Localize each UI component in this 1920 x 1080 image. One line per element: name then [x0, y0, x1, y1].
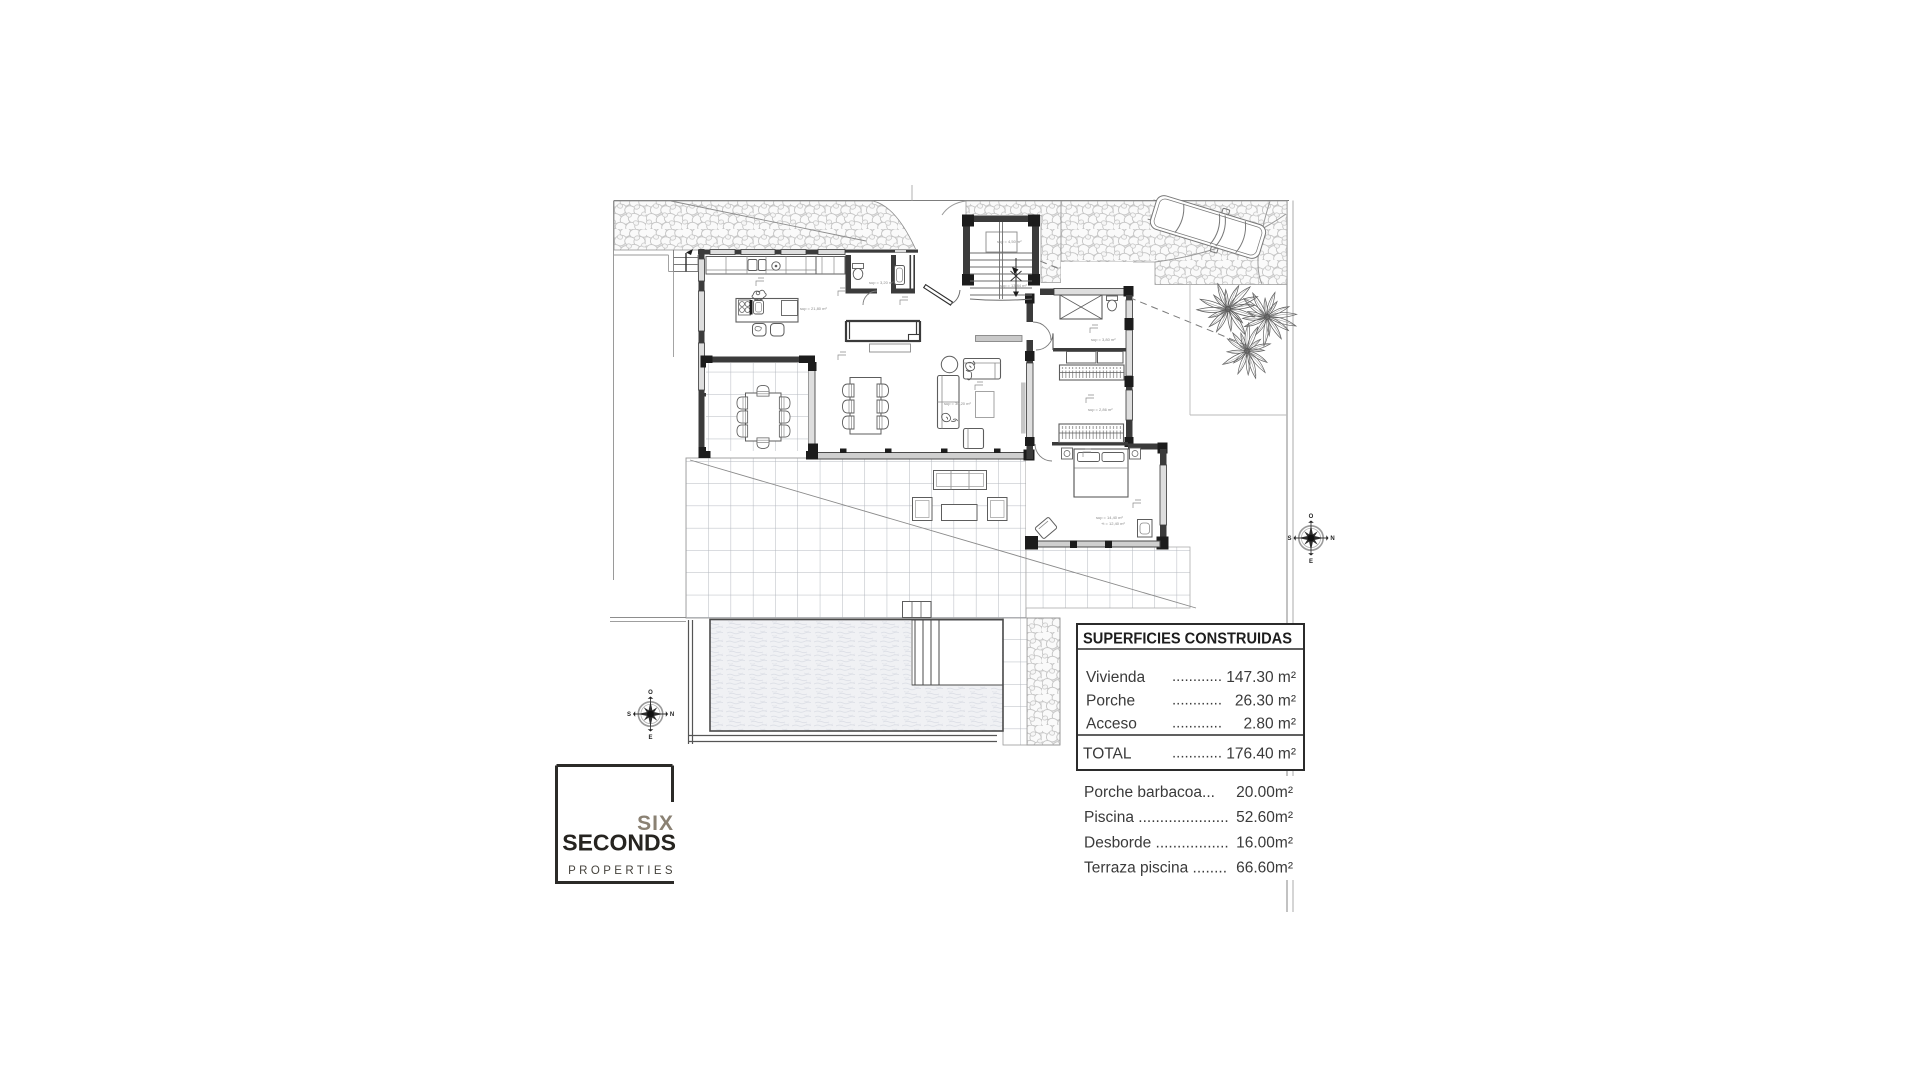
svg-text:Acceso: Acceso: [1086, 716, 1137, 733]
svg-text:Porche barbacoa...: Porche barbacoa...: [1084, 784, 1215, 801]
svg-text:176.40 m²: 176.40 m²: [1226, 746, 1296, 763]
svg-text:sup = 3,20 m²: sup = 3,20 m²: [869, 280, 894, 285]
svg-text:............: ............: [1172, 745, 1222, 762]
svg-text:sup = 13,84 m²: sup = 13,84 m²: [1000, 283, 1027, 288]
svg-text:+t = 12,40 m²: +t = 12,40 m²: [1101, 521, 1125, 526]
svg-text:2.80 m²: 2.80 m²: [1243, 716, 1296, 733]
svg-text:147.30 m²: 147.30 m²: [1226, 669, 1296, 686]
svg-text:26.30 m²: 26.30 m²: [1235, 693, 1296, 710]
svg-text:Desborde .................: Desborde .................: [1084, 835, 1229, 852]
svg-text:52.60m²: 52.60m²: [1236, 809, 1293, 826]
svg-text:20.00m²: 20.00m²: [1236, 784, 1293, 801]
svg-text:66.60m²: 66.60m²: [1236, 860, 1293, 877]
svg-text:PROPERTIES: PROPERTIES: [568, 865, 676, 877]
svg-text:sup = 30,20 m²: sup = 30,20 m²: [944, 401, 971, 406]
svg-text:Terraza piscina ........: Terraza piscina ........: [1084, 860, 1227, 877]
svg-text:............: ............: [1172, 692, 1222, 709]
svg-text:sup = 14,40 m²: sup = 14,40 m²: [1096, 515, 1123, 520]
svg-text:sup = 4,50 m²: sup = 4,50 m²: [997, 239, 1022, 244]
svg-text:SECONDS: SECONDS: [562, 830, 676, 856]
svg-text:TOTAL: TOTAL: [1083, 746, 1132, 763]
svg-text:16.00m²: 16.00m²: [1236, 835, 1293, 852]
svg-text:sup = 2,86 m²: sup = 2,86 m²: [1088, 407, 1113, 412]
svg-text:SUPERFICIES CONSTRUIDAS: SUPERFICIES CONSTRUIDAS: [1083, 631, 1292, 648]
svg-text:sup = 21,80 m²: sup = 21,80 m²: [800, 306, 827, 311]
svg-text:Piscina .....................: Piscina .....................: [1084, 809, 1229, 826]
svg-text:............: ............: [1172, 715, 1222, 732]
svg-text:sup = 3,80 m²: sup = 3,80 m²: [1091, 337, 1116, 342]
svg-text:............: ............: [1172, 668, 1222, 685]
svg-text:Porche: Porche: [1086, 693, 1135, 710]
svg-text:Vivienda: Vivienda: [1086, 669, 1146, 686]
